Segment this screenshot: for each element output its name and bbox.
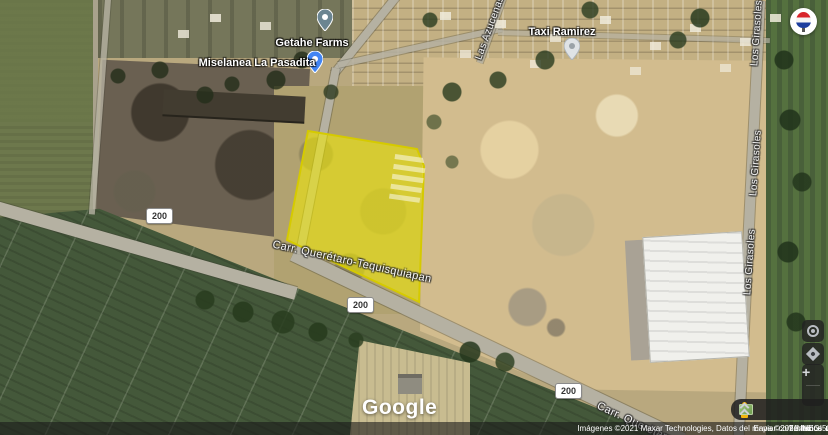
compass-icon [806, 347, 820, 361]
highway-shield-200-left: 200 [146, 208, 173, 224]
poi-label-taxi-ramirez[interactable]: Taxi Ramirez [528, 26, 595, 38]
getahe-farms-pin[interactable] [317, 9, 333, 31]
my-location-icon [807, 325, 819, 337]
remax-balloon-marker[interactable] [790, 8, 817, 35]
highway-shield-200-bottom: 200 [555, 383, 582, 399]
feedback-link[interactable]: Enviar comentarios [754, 424, 822, 433]
zoom-divider [806, 385, 820, 386]
collapse-chevrons-icon[interactable] [739, 403, 751, 417]
poi-label-getahe-farms[interactable]: Getahe Farms [275, 37, 348, 49]
zoom-out-button[interactable]: − [802, 364, 810, 380]
poi-label-miselanea[interactable]: Miselanea La Pasadita [199, 57, 316, 69]
attribution-bar: Imágenes ©2021 Maxar Technologies, Datos… [0, 422, 828, 435]
compass-button[interactable] [802, 343, 824, 365]
parcel-overlay-layer [0, 0, 828, 435]
taxi-ramirez-pin[interactable] [564, 38, 580, 60]
balloon-icon [796, 12, 811, 28]
my-location-button[interactable] [802, 320, 824, 342]
map-canvas[interactable]: 200 200 200 Los Girasoles Los Girasoles … [0, 0, 828, 435]
balloon-basket [802, 28, 805, 32]
map-style-toolbar [731, 399, 828, 420]
google-logo[interactable]: Google [362, 396, 437, 420]
highway-shield-200-mid: 200 [347, 297, 374, 313]
